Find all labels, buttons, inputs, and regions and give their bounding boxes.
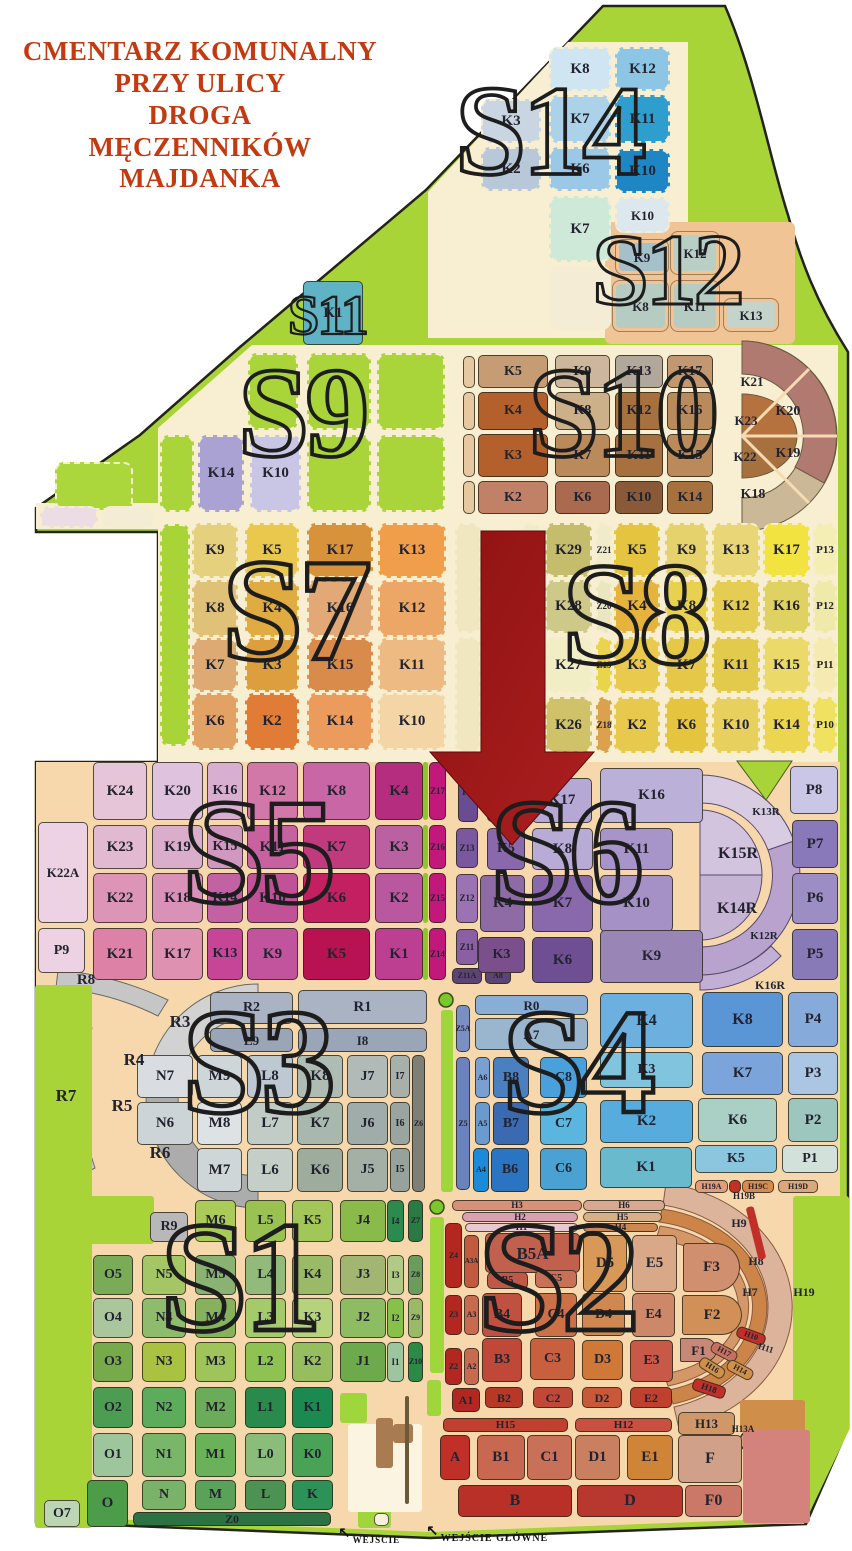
map-title: CMENTARZ KOMUNALNY PRZY ULICY DROGA MĘCZ… [6,36,394,195]
cemetery-map: K8K12K3K7K11K2K6K10K7K10K9K12K8K11K13K1K… [0,0,852,1551]
title-line-4: MĘCZENNIKÓW MAJDANKA [6,132,394,196]
entrance-arrow-icon: ↖ [426,1524,439,1539]
entrance-arrow-icon: ↖ [338,1526,351,1541]
section-label-s7: S7 [222,552,367,669]
section-label-s2: S2 [478,1215,635,1341]
entrance-side: ↖ WEJŚCIE [338,1526,400,1545]
section-label-s12: S12 [592,230,742,312]
section-label-s14: S14 [455,80,643,182]
title-line-1: CMENTARZ KOMUNALNY [6,36,394,68]
section-labels-layer: S14S12S11S9S10S7S8S5S6S3S4S1S2 [0,0,852,1551]
section-label-s6: S6 [490,792,639,912]
section-label-s5: S5 [182,792,331,912]
title-line-2: PRZY ULICY [6,68,394,100]
section-label-s4: S4 [502,1002,651,1122]
section-label-s8: S8 [562,556,707,673]
entrance-main: ↖ WEJŚCIE GŁÓWNE [426,1524,548,1544]
section-label-s10: S10 [528,362,716,464]
entrance-main-label: WEJŚCIE GŁÓWNE [441,1533,549,1544]
section-label-s11: S11 [288,294,367,339]
section-label-s1: S1 [160,1215,317,1341]
title-line-3: DROGA [6,100,394,132]
section-label-s9: S9 [238,362,366,464]
section-label-s3: S3 [182,1002,331,1122]
entrance-side-label: WEJŚCIE [353,1535,401,1545]
